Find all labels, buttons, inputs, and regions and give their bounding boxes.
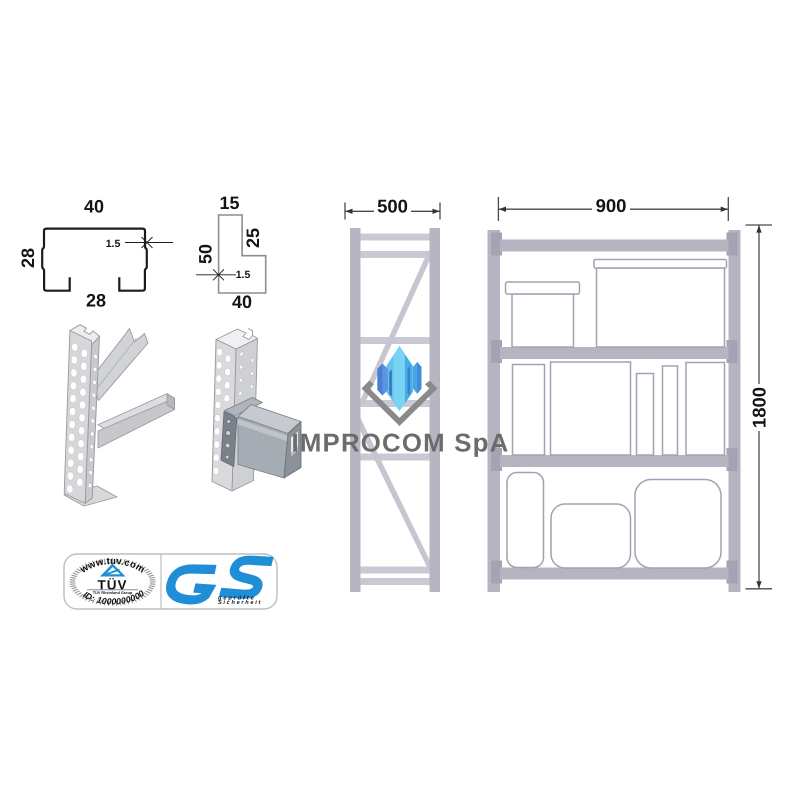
svg-text:15: 15 bbox=[219, 193, 239, 213]
svg-text:40: 40 bbox=[232, 292, 252, 312]
svg-text:TÜV Rheinland Group: TÜV Rheinland Group bbox=[93, 590, 133, 595]
svg-text:900: 900 bbox=[596, 195, 627, 216]
svg-text:50: 50 bbox=[196, 244, 216, 264]
svg-text:1.5: 1.5 bbox=[236, 269, 251, 281]
svg-text:1800: 1800 bbox=[749, 387, 770, 428]
svg-text:500: 500 bbox=[377, 196, 408, 217]
svg-text:1.5: 1.5 bbox=[106, 238, 121, 250]
svg-text:28: 28 bbox=[86, 291, 106, 311]
svg-text:IMPROCOM SpA: IMPROCOM SpA bbox=[292, 430, 510, 458]
svg-text:Sicherheit: Sicherheit bbox=[218, 599, 262, 606]
svg-text:25: 25 bbox=[243, 228, 263, 248]
svg-text:28: 28 bbox=[18, 248, 38, 268]
svg-text:40: 40 bbox=[84, 197, 104, 217]
